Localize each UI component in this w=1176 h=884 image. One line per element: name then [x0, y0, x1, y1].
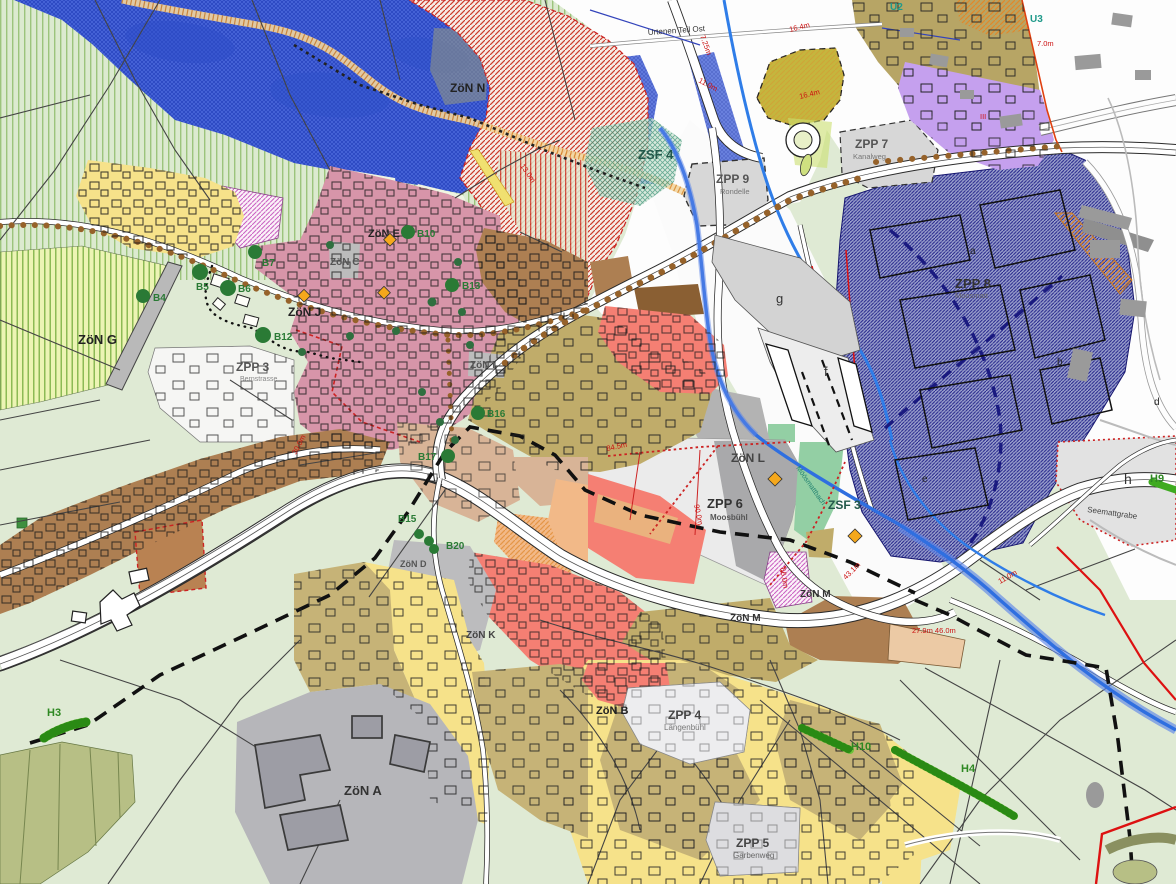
svg-text:a: a [970, 246, 976, 257]
svg-text:7.0m: 7.0m [1037, 39, 1054, 48]
svg-text:ZöN G: ZöN G [78, 332, 117, 347]
svg-text:ZPP 5: ZPP 5 [736, 836, 769, 850]
svg-text:Garbenweg: Garbenweg [733, 851, 774, 860]
svg-text:B12: B12 [274, 332, 293, 343]
svg-text:ZPP 4: ZPP 4 [668, 708, 701, 722]
svg-text:ZPP 9: ZPP 9 [716, 172, 749, 186]
svg-text:ZSF 3: ZSF 3 [828, 498, 861, 512]
svg-text:ZöN B: ZöN B [596, 705, 628, 717]
svg-text:Rondelle: Rondelle [720, 187, 750, 196]
svg-text:ZöN D: ZöN D [400, 559, 427, 569]
svg-text:d: d [1154, 397, 1160, 408]
svg-text:f: f [824, 364, 828, 379]
svg-text:e: e [922, 474, 928, 485]
svg-text:B16: B16 [487, 409, 506, 420]
svg-text:ZöN I: ZöN I [470, 360, 495, 371]
svg-text:ZöN M: ZöN M [730, 613, 761, 624]
svg-text:Moosbühl: Moosbühl [710, 513, 748, 522]
svg-text:ZöN N: ZöN N [450, 81, 485, 95]
svg-text:ZöN C: ZöN C [330, 257, 359, 268]
svg-text:ZPP 3: ZPP 3 [236, 360, 269, 374]
svg-text:ZPP 7: ZPP 7 [855, 137, 888, 151]
svg-text:B20: B20 [446, 541, 465, 552]
svg-text:ZöN J: ZöN J [288, 305, 321, 319]
svg-text:ZPP 6: ZPP 6 [707, 496, 743, 511]
svg-text:H4: H4 [961, 763, 976, 775]
svg-text:ZPP 8: ZPP 8 [955, 276, 991, 291]
svg-text:B15: B15 [398, 514, 417, 525]
svg-text:H3: H3 [47, 707, 61, 719]
svg-text:ZöN L: ZöN L [731, 451, 765, 465]
svg-text:B6: B6 [238, 284, 251, 295]
svg-text:III: III [980, 112, 986, 121]
svg-text:ZöN M: ZöN M [800, 589, 831, 600]
svg-text:U2: U2 [890, 2, 903, 13]
svg-text:b: b [1057, 357, 1063, 368]
svg-text:B5: B5 [196, 282, 209, 293]
svg-text:ZöN K: ZöN K [466, 630, 496, 641]
svg-text:H10: H10 [851, 741, 871, 753]
svg-text:U3: U3 [1030, 14, 1043, 25]
svg-text:B7: B7 [262, 258, 275, 269]
svg-text:B10: B10 [417, 229, 436, 240]
svg-text:g: g [776, 291, 783, 306]
svg-text:B17: B17 [418, 452, 437, 463]
svg-text:B4: B4 [153, 293, 166, 304]
svg-text:Kanalweg: Kanalweg [853, 152, 886, 161]
svg-text:ZSF 4: ZSF 4 [638, 147, 674, 162]
svg-text:H9: H9 [1150, 473, 1164, 485]
svg-text:B13: B13 [462, 281, 481, 292]
svg-text:27.9m 46.0m: 27.9m 46.0m [912, 626, 956, 635]
svg-text:Moosmatt: Moosmatt [955, 291, 989, 300]
svg-text:Bernstrasse: Bernstrasse [240, 376, 277, 383]
svg-text:ZöN A: ZöN A [344, 783, 382, 798]
svg-text:Längenbühl: Längenbühl [664, 723, 706, 732]
svg-text:h: h [1124, 471, 1132, 487]
